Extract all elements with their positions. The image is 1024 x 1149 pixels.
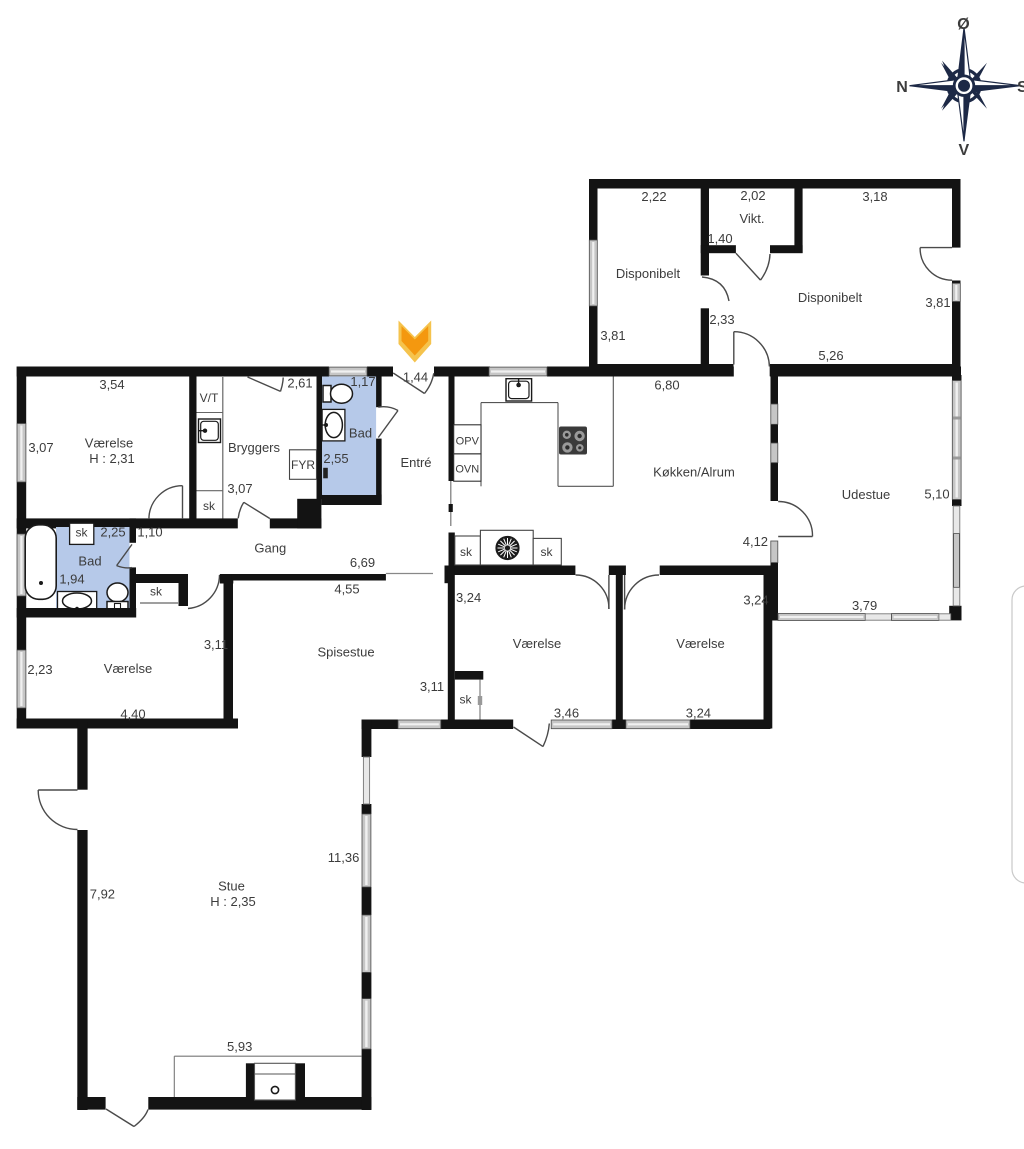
svg-text:sk: sk	[460, 545, 473, 559]
svg-text:5,93: 5,93	[227, 1039, 252, 1054]
svg-text:Disponibelt: Disponibelt	[798, 290, 863, 305]
svg-text:N: N	[896, 79, 908, 96]
svg-text:sk: sk	[76, 526, 89, 540]
svg-text:Stue: Stue	[218, 879, 245, 894]
svg-text:V/T: V/T	[200, 391, 219, 405]
svg-text:Ø: Ø	[957, 16, 969, 33]
svg-text:sk: sk	[541, 545, 554, 559]
svg-text:3,46: 3,46	[554, 706, 579, 721]
svg-text:3,24: 3,24	[686, 706, 711, 721]
svg-text:5,10: 5,10	[924, 487, 949, 502]
svg-text:3,11: 3,11	[420, 679, 444, 694]
svg-text:7,92: 7,92	[90, 887, 115, 902]
svg-text:2,02: 2,02	[740, 188, 765, 203]
svg-text:Udestue: Udestue	[842, 487, 890, 502]
svg-text:3,81: 3,81	[600, 328, 625, 343]
svg-text:5,26: 5,26	[818, 348, 843, 363]
svg-text:H : 2,35: H : 2,35	[210, 894, 256, 909]
svg-text:Værelse: Værelse	[104, 661, 152, 676]
svg-text:3,07: 3,07	[227, 481, 252, 496]
svg-text:Gang: Gang	[254, 541, 286, 556]
svg-text:Spisestue: Spisestue	[317, 645, 374, 660]
svg-text:3,54: 3,54	[99, 377, 124, 392]
svg-text:2,55: 2,55	[323, 451, 348, 466]
svg-text:1,40: 1,40	[707, 231, 732, 246]
svg-text:6,69: 6,69	[350, 555, 375, 570]
svg-text:2,33: 2,33	[709, 312, 734, 327]
svg-text:Køkken/Alrum: Køkken/Alrum	[653, 465, 735, 480]
svg-text:Vikt.: Vikt.	[739, 211, 764, 226]
svg-text:1,44: 1,44	[403, 370, 428, 385]
svg-text:3,79: 3,79	[852, 598, 877, 613]
svg-text:V: V	[958, 142, 969, 159]
svg-text:1,94: 1,94	[59, 572, 84, 587]
svg-text:Værelse: Værelse	[513, 636, 561, 651]
svg-text:11,36: 11,36	[328, 850, 360, 865]
svg-text:3,24: 3,24	[743, 593, 768, 608]
svg-text:Værelse: Værelse	[676, 636, 724, 651]
svg-text:Bad: Bad	[78, 554, 101, 569]
svg-text:3,07: 3,07	[28, 440, 53, 455]
svg-text:OVN: OVN	[455, 464, 479, 476]
svg-text:3,24: 3,24	[456, 590, 481, 605]
svg-text:Entré: Entré	[400, 455, 431, 470]
svg-text:4,55: 4,55	[334, 582, 359, 597]
svg-text:OPV: OPV	[456, 436, 480, 448]
svg-text:H : 2,31: H : 2,31	[89, 451, 135, 466]
svg-text:2,23: 2,23	[27, 662, 52, 677]
svg-text:Værelse: Værelse	[85, 436, 133, 451]
svg-text:Bryggers: Bryggers	[228, 440, 281, 455]
svg-text:1,10: 1,10	[137, 525, 162, 540]
svg-text:Disponibelt: Disponibelt	[616, 266, 681, 281]
svg-text:sk: sk	[203, 499, 216, 513]
svg-text:4,12: 4,12	[743, 534, 768, 549]
svg-text:3,81: 3,81	[925, 295, 950, 310]
svg-text:S: S	[1017, 79, 1024, 96]
svg-text:3,18: 3,18	[862, 189, 887, 204]
svg-text:6,80: 6,80	[654, 378, 679, 393]
svg-text:Bad: Bad	[349, 426, 372, 441]
svg-text:1,17: 1,17	[350, 374, 375, 389]
svg-text:FYR: FYR	[291, 458, 315, 472]
svg-text:3,11: 3,11	[204, 637, 228, 652]
svg-text:sk: sk	[460, 693, 473, 707]
svg-text:2,22: 2,22	[641, 189, 666, 204]
svg-text:2,61: 2,61	[287, 376, 312, 391]
svg-text:sk: sk	[150, 585, 163, 599]
svg-text:2,25: 2,25	[100, 525, 125, 540]
svg-text:4,40: 4,40	[120, 707, 145, 722]
